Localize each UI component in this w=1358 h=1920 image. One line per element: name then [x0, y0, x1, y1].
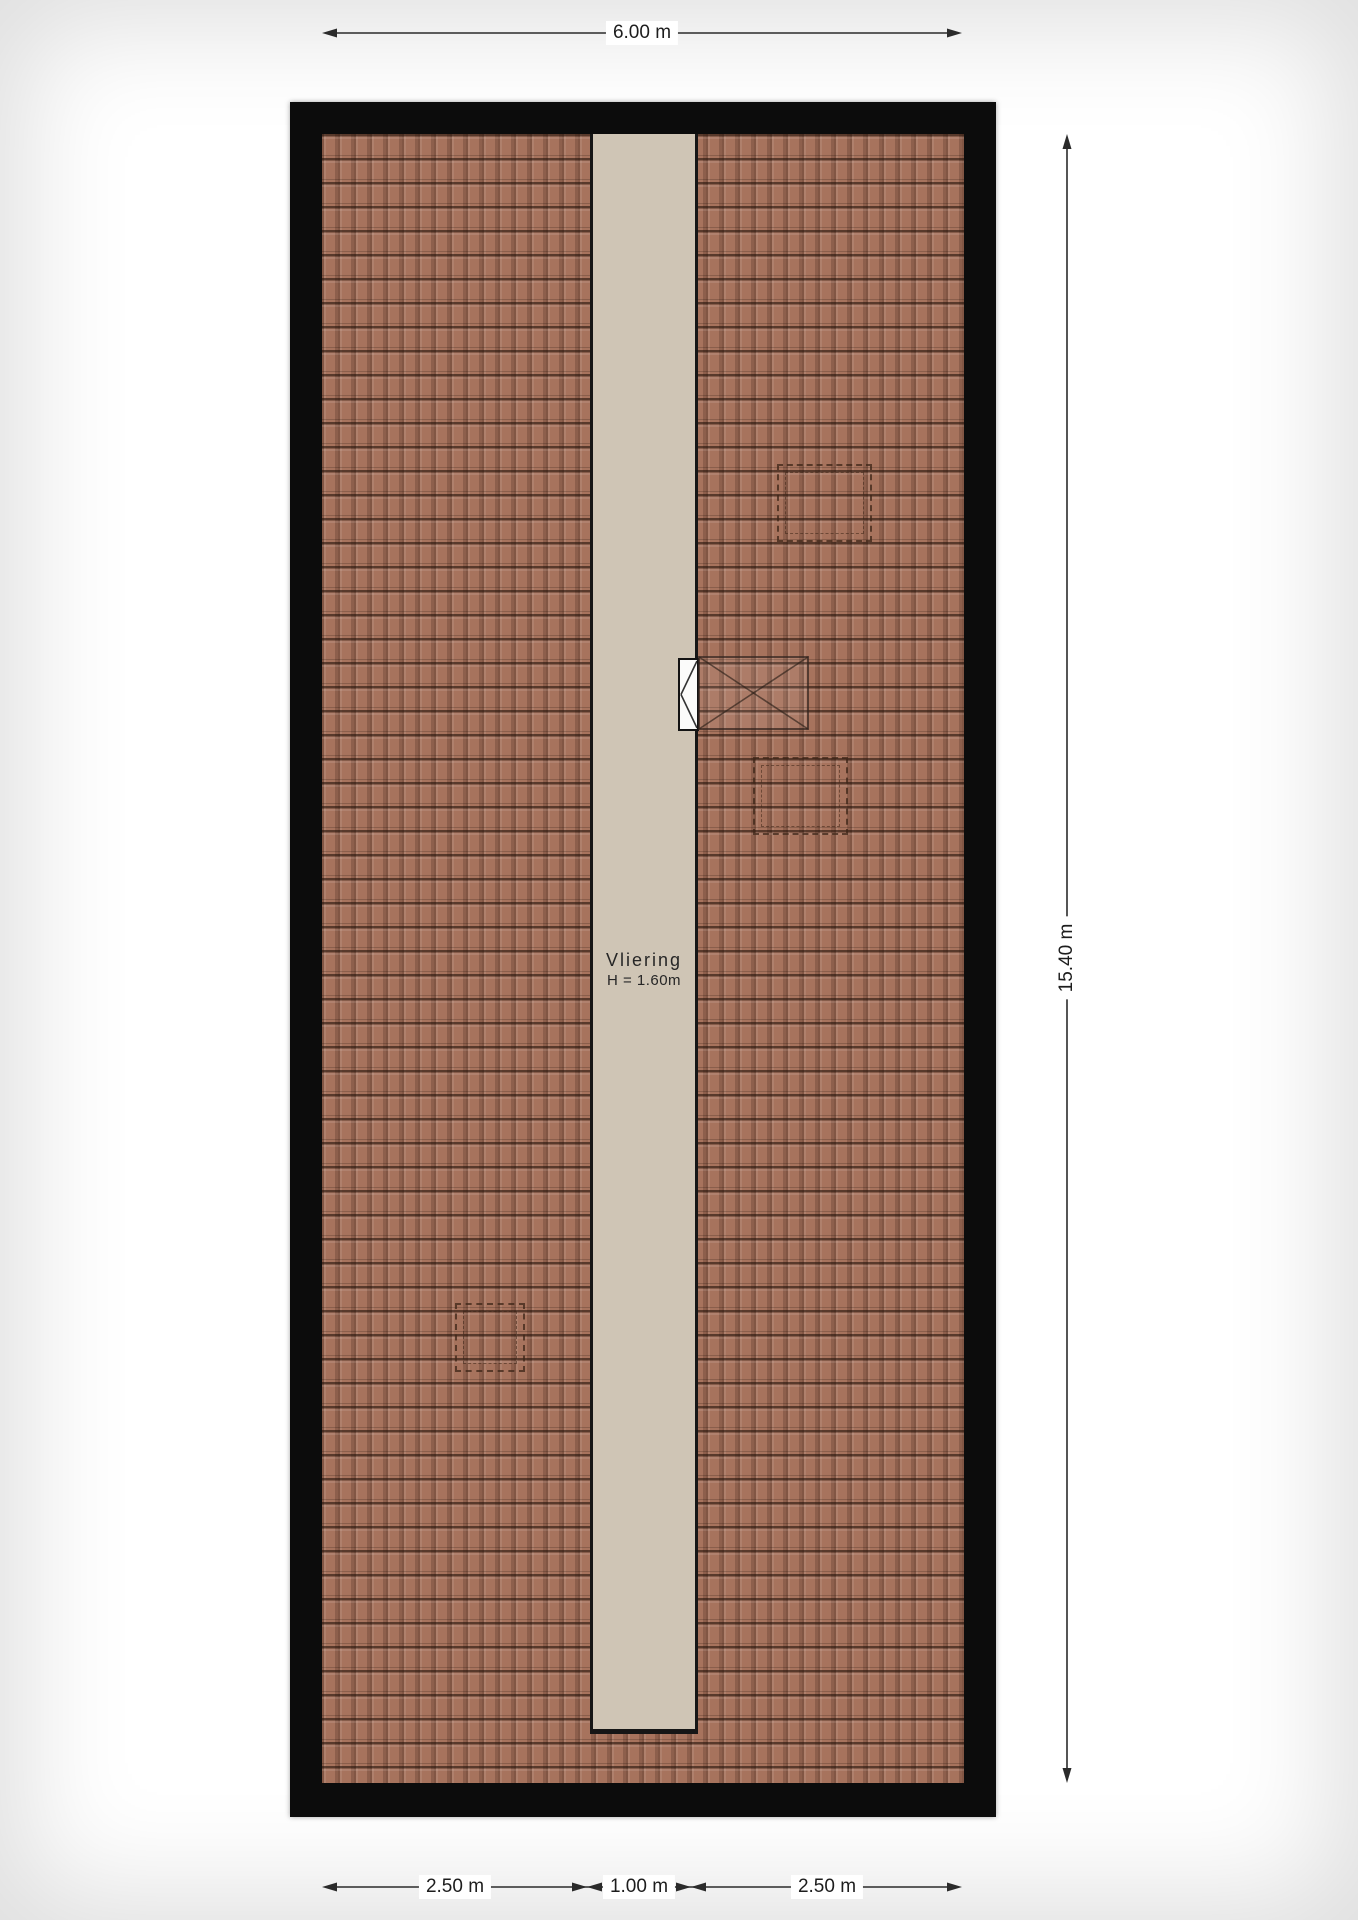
attic-floor-plan: Vliering H = 1.60m	[290, 102, 996, 1817]
loft-hatch-symbol	[678, 658, 699, 731]
dimension-top-width: 6.00 m	[606, 21, 678, 45]
dashed-outline-middle-right	[753, 757, 848, 835]
hatch-triangle-icon	[680, 660, 697, 729]
room-name: Vliering	[563, 949, 725, 971]
loft-floor-strip: Vliering H = 1.60m	[590, 134, 698, 1734]
floorplan-page: Vliering H = 1.60m	[0, 0, 1358, 1920]
roof-tiles-area: Vliering H = 1.60m	[322, 134, 964, 1783]
dashed-outline-top-right	[777, 464, 872, 542]
roof-window-symbol	[698, 656, 809, 730]
room-height-label: H = 1.60m	[563, 971, 725, 990]
dimension-bottom-middle: 1.00 m	[603, 1875, 675, 1899]
dashed-outline-inner	[785, 472, 864, 534]
dimension-bottom-left: 2.50 m	[419, 1875, 491, 1899]
dashed-outline-inner	[761, 765, 840, 827]
room-label: Vliering H = 1.60m	[563, 949, 725, 990]
dashed-outline-bottom-left	[455, 1303, 525, 1372]
roof-window-x-icon	[698, 656, 809, 730]
dimension-bottom-right: 2.50 m	[791, 1875, 863, 1899]
dimension-right-height: 15.40 m	[1055, 917, 1079, 1000]
dashed-outline-inner	[463, 1311, 517, 1364]
